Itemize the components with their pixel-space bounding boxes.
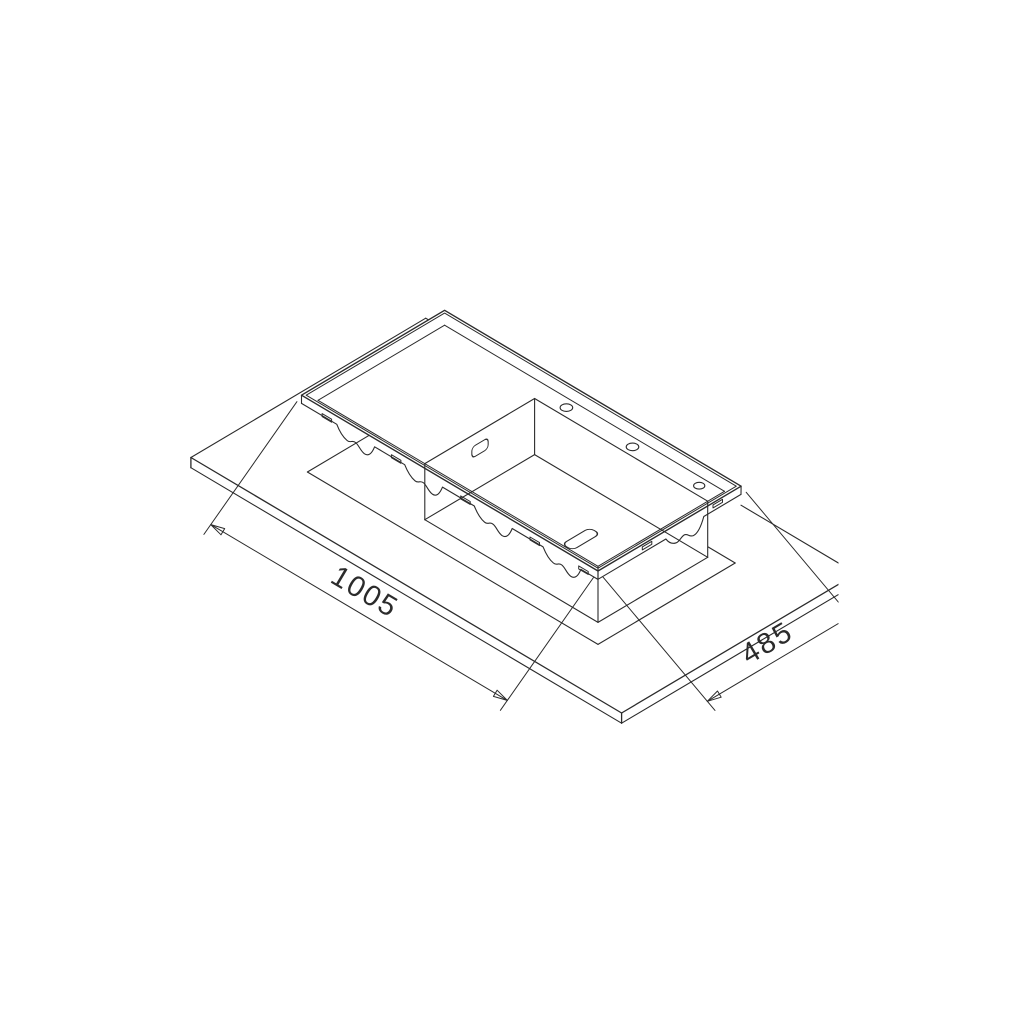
deck-front-edge [318,400,598,566]
countertop-front-left-thickness [191,468,622,724]
drain-hole [562,528,600,550]
cutout-front-right-edge [598,563,735,644]
cutout-front-left-edge [307,472,598,644]
cutout-back-right-stub [708,547,735,563]
rim-lip-front-left-with-clip-brackets [302,403,598,579]
countertop-front-left-edge [191,458,622,714]
sink-rim-outer-edge [302,310,742,571]
deck-left-edge [318,325,445,400]
dimension-length-label: 1005 [325,560,404,625]
countertop-back-right-edge [741,505,856,574]
bowl-floor-left-edge [425,455,535,520]
bowl-floor-back-edge [535,455,708,558]
dim-length-line [211,525,508,701]
bowl-opening-back-edge [535,399,708,502]
countertop-front-right-thickness [622,584,857,723]
deck-back-edge [445,325,725,491]
tap-hole-1 [560,404,573,412]
tap-hole-2 [626,443,639,451]
tap-hole-3 [694,482,705,489]
overflow-hole [472,438,488,459]
sink-dimension-drawing: 1005 485 [0,0,1024,1024]
bowl-bottom-front-edge [425,520,598,623]
rim-lip-front-right-with-clip-bracket [598,494,741,579]
deck-right-edge [598,491,725,566]
dim-width-arrow-front [707,691,721,701]
dim-length-arrow-right [493,690,507,700]
dim-length-extension-right [500,578,593,711]
dim-length-arrow-left [211,525,225,535]
bowl-bottom-right-edge [598,557,708,622]
cutout-back-left-stub [307,435,369,472]
technical-drawing-page: 1005 485 [0,0,1024,1024]
countertop-back-left-edge [191,318,426,457]
